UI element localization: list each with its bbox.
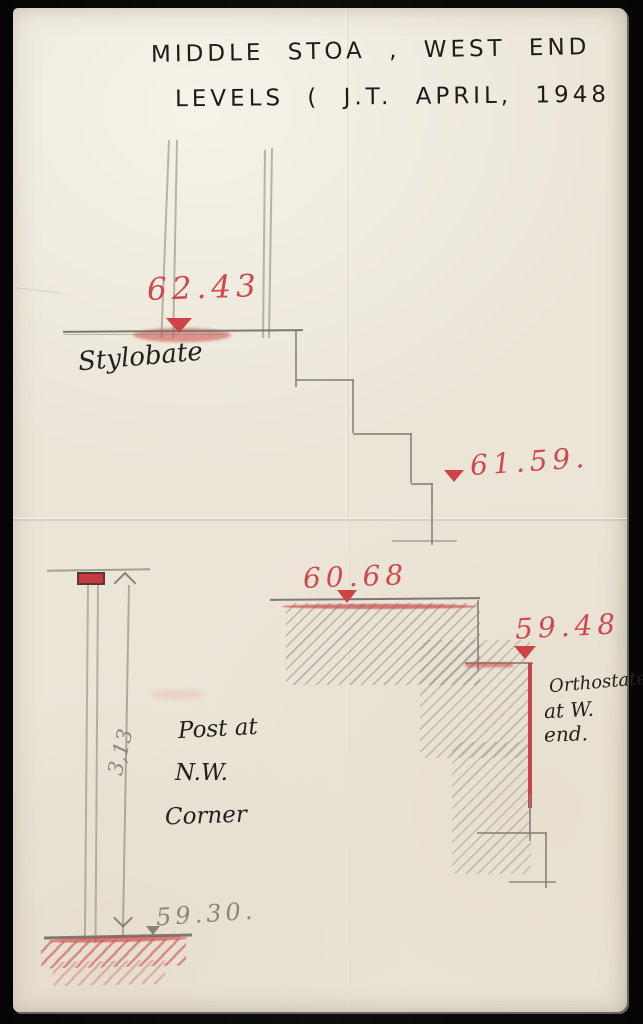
post-line bbox=[84, 585, 89, 940]
orthostate-face-red-line bbox=[528, 663, 532, 808]
orthostate-face-pencil bbox=[529, 795, 531, 841]
step-edge bbox=[410, 433, 412, 483]
section-hatching bbox=[452, 742, 531, 874]
level-value-terrace: 60.68 bbox=[302, 558, 408, 595]
terrace-corner-edge bbox=[477, 600, 479, 670]
stylobate-line-faint bbox=[63, 334, 223, 335]
horizontal-fold-crease bbox=[13, 518, 627, 521]
step-tread bbox=[411, 483, 433, 485]
level-value-stylobate: 62.43 bbox=[146, 268, 261, 308]
post-red-cap bbox=[77, 572, 105, 585]
terrace-line bbox=[270, 597, 480, 601]
step-edge bbox=[352, 380, 354, 433]
scan-background: MIDDLE STOA , WEST END LEVELS ( J.T. APR… bbox=[0, 0, 643, 1024]
dimension-value: 3,13 bbox=[103, 726, 138, 777]
notebook-page: MIDDLE STOA , WEST END LEVELS ( J.T. APR… bbox=[13, 8, 627, 1012]
orthostate-label-line2: at W. bbox=[543, 697, 594, 724]
column-line bbox=[262, 150, 266, 338]
column-line bbox=[160, 140, 170, 338]
level-value-ground: 59.30. bbox=[155, 897, 257, 932]
red-underline-orthostate bbox=[465, 663, 513, 667]
level-value-steps-foot: 61.59. bbox=[469, 441, 590, 482]
post-label-line3: Corner bbox=[165, 802, 248, 831]
dimension-arrow-down bbox=[113, 908, 133, 928]
step-edge bbox=[431, 483, 433, 545]
step-tread bbox=[353, 433, 412, 435]
page-title-line1: MIDDLE STOA , WEST END bbox=[151, 34, 591, 68]
level-value-orthostate: 59.48 bbox=[514, 607, 621, 645]
foundation-line bbox=[477, 832, 547, 834]
level-marker-62-43 bbox=[166, 318, 192, 336]
page-title-line2: LEVELS ( J.T. APRIL, 1948 bbox=[175, 82, 610, 113]
post-label-line1: Post at bbox=[177, 714, 258, 744]
ground-hatching-red bbox=[53, 960, 165, 986]
column-line bbox=[172, 140, 178, 338]
stylobate-label: Stylobate bbox=[77, 337, 204, 378]
step-base-tick bbox=[392, 540, 457, 542]
pink-smudge bbox=[150, 690, 205, 699]
dimension-arrow-up bbox=[114, 572, 137, 595]
column-line bbox=[268, 148, 273, 338]
post-label-line2: N.W. bbox=[175, 760, 228, 786]
post-line bbox=[95, 585, 99, 943]
level-marker-59-48 bbox=[514, 646, 536, 662]
foundation-base bbox=[509, 881, 556, 883]
orthostate-label-line3: end. bbox=[544, 721, 589, 747]
level-marker-61-59 bbox=[444, 470, 464, 485]
foundation-edge bbox=[545, 833, 547, 888]
edge-wrinkle bbox=[16, 287, 62, 294]
orthostate-label-line1: Orthostate bbox=[548, 668, 643, 697]
step-tread bbox=[296, 379, 354, 381]
